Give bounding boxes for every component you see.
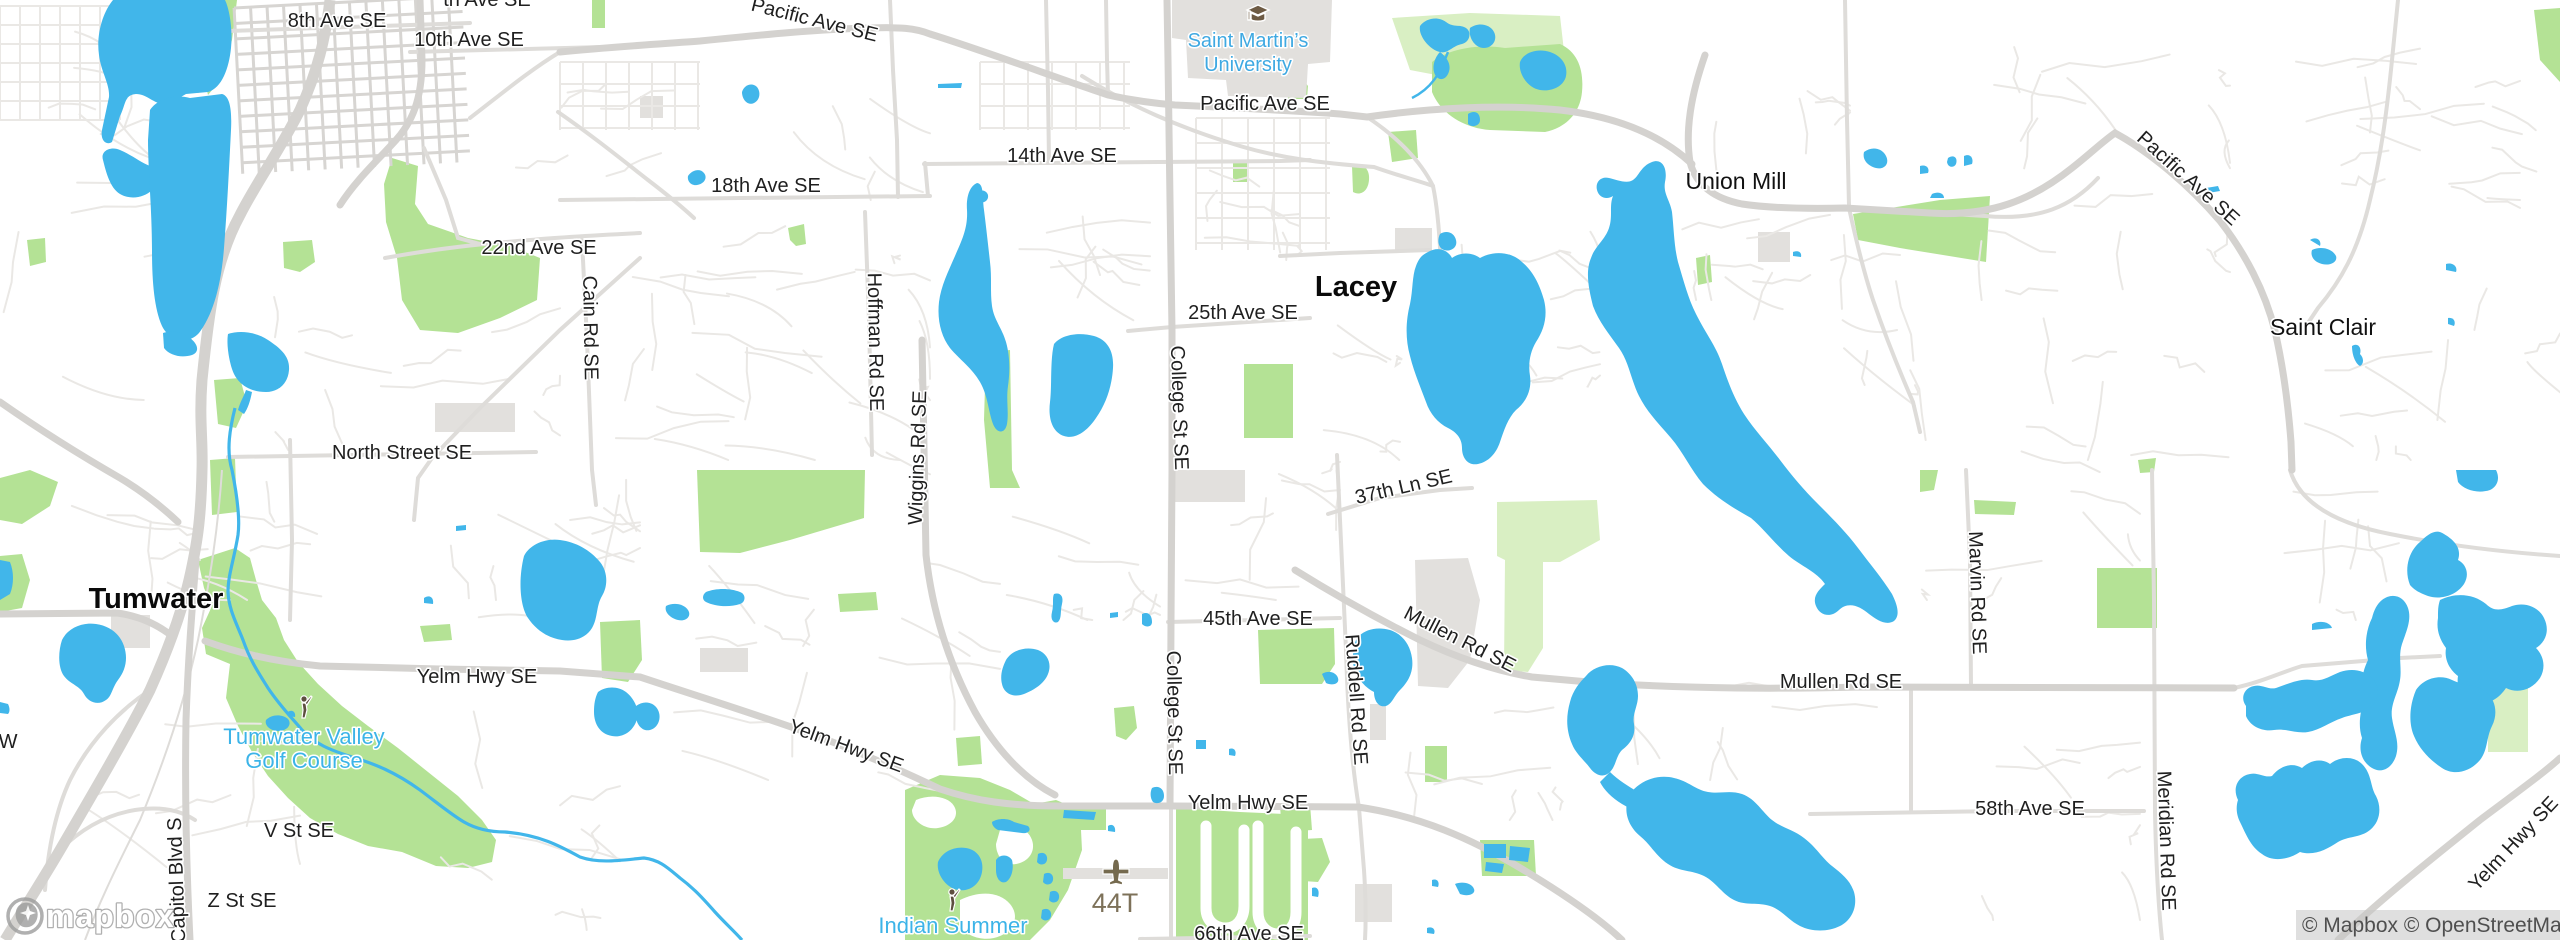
svg-text:Tumwater: Tumwater: [89, 583, 224, 615]
svg-text:Golf Course: Golf Course: [245, 748, 362, 773]
svg-text:Z St SE: Z St SE: [208, 890, 277, 912]
svg-text:W: W: [0, 731, 18, 753]
svg-text:25th Ave SE: 25th Ave SE: [1188, 302, 1298, 324]
svg-text:Yelm Hwy SE: Yelm Hwy SE: [417, 666, 537, 688]
svg-text:Cain Rd SE: Cain Rd SE: [578, 275, 602, 380]
svg-text:College St SE: College St SE: [1162, 650, 1186, 775]
svg-text:10th Ave SE: 10th Ave SE: [414, 29, 524, 51]
svg-text:Hoffman Rd SE: Hoffman Rd SE: [863, 272, 887, 411]
svg-text:Wiggins Rd SE: Wiggins Rd SE: [905, 390, 932, 525]
svg-text:45th Ave SE: 45th Ave SE: [1203, 608, 1313, 630]
svg-text:58th Ave SE: 58th Ave SE: [1975, 798, 2085, 820]
svg-text:V St SE: V St SE: [264, 820, 334, 842]
svg-text:th Ave SE: th Ave SE: [443, 0, 530, 11]
svg-text:Marvin Rd SE: Marvin Rd SE: [1964, 531, 1990, 655]
svg-text:© Mapbox © OpenStreetMap: © Mapbox © OpenStreetMap: [2302, 914, 2560, 937]
svg-text:44T: 44T: [1092, 888, 1139, 918]
svg-text:66th Ave SE: 66th Ave SE: [1194, 923, 1304, 940]
svg-text:Indian Summer: Indian Summer: [878, 913, 1027, 938]
svg-text:Union Mill: Union Mill: [1686, 168, 1787, 194]
svg-text:mapbox: mapbox: [46, 898, 175, 934]
svg-text:Lacey: Lacey: [1315, 271, 1397, 303]
svg-text:Saint Clair: Saint Clair: [2270, 314, 2376, 340]
svg-text:Saint Martin’s: Saint Martin’s: [1188, 30, 1309, 52]
svg-text:8th Ave SE: 8th Ave SE: [288, 10, 387, 32]
svg-text:22nd Ave SE: 22nd Ave SE: [481, 237, 596, 259]
svg-text:North Street SE: North Street SE: [332, 442, 472, 464]
svg-text:University: University: [1204, 54, 1292, 76]
svg-text:College St SE: College St SE: [1166, 345, 1192, 470]
svg-text:Pacific Ave SE: Pacific Ave SE: [1200, 93, 1330, 115]
svg-text:18th Ave SE: 18th Ave SE: [711, 175, 821, 197]
svg-text:14th Ave SE: 14th Ave SE: [1007, 145, 1117, 167]
svg-text:Yelm Hwy SE: Yelm Hwy SE: [1188, 792, 1308, 814]
svg-text:Tumwater Valley: Tumwater Valley: [223, 724, 384, 749]
svg-text:Mullen Rd SE: Mullen Rd SE: [1780, 671, 1902, 693]
